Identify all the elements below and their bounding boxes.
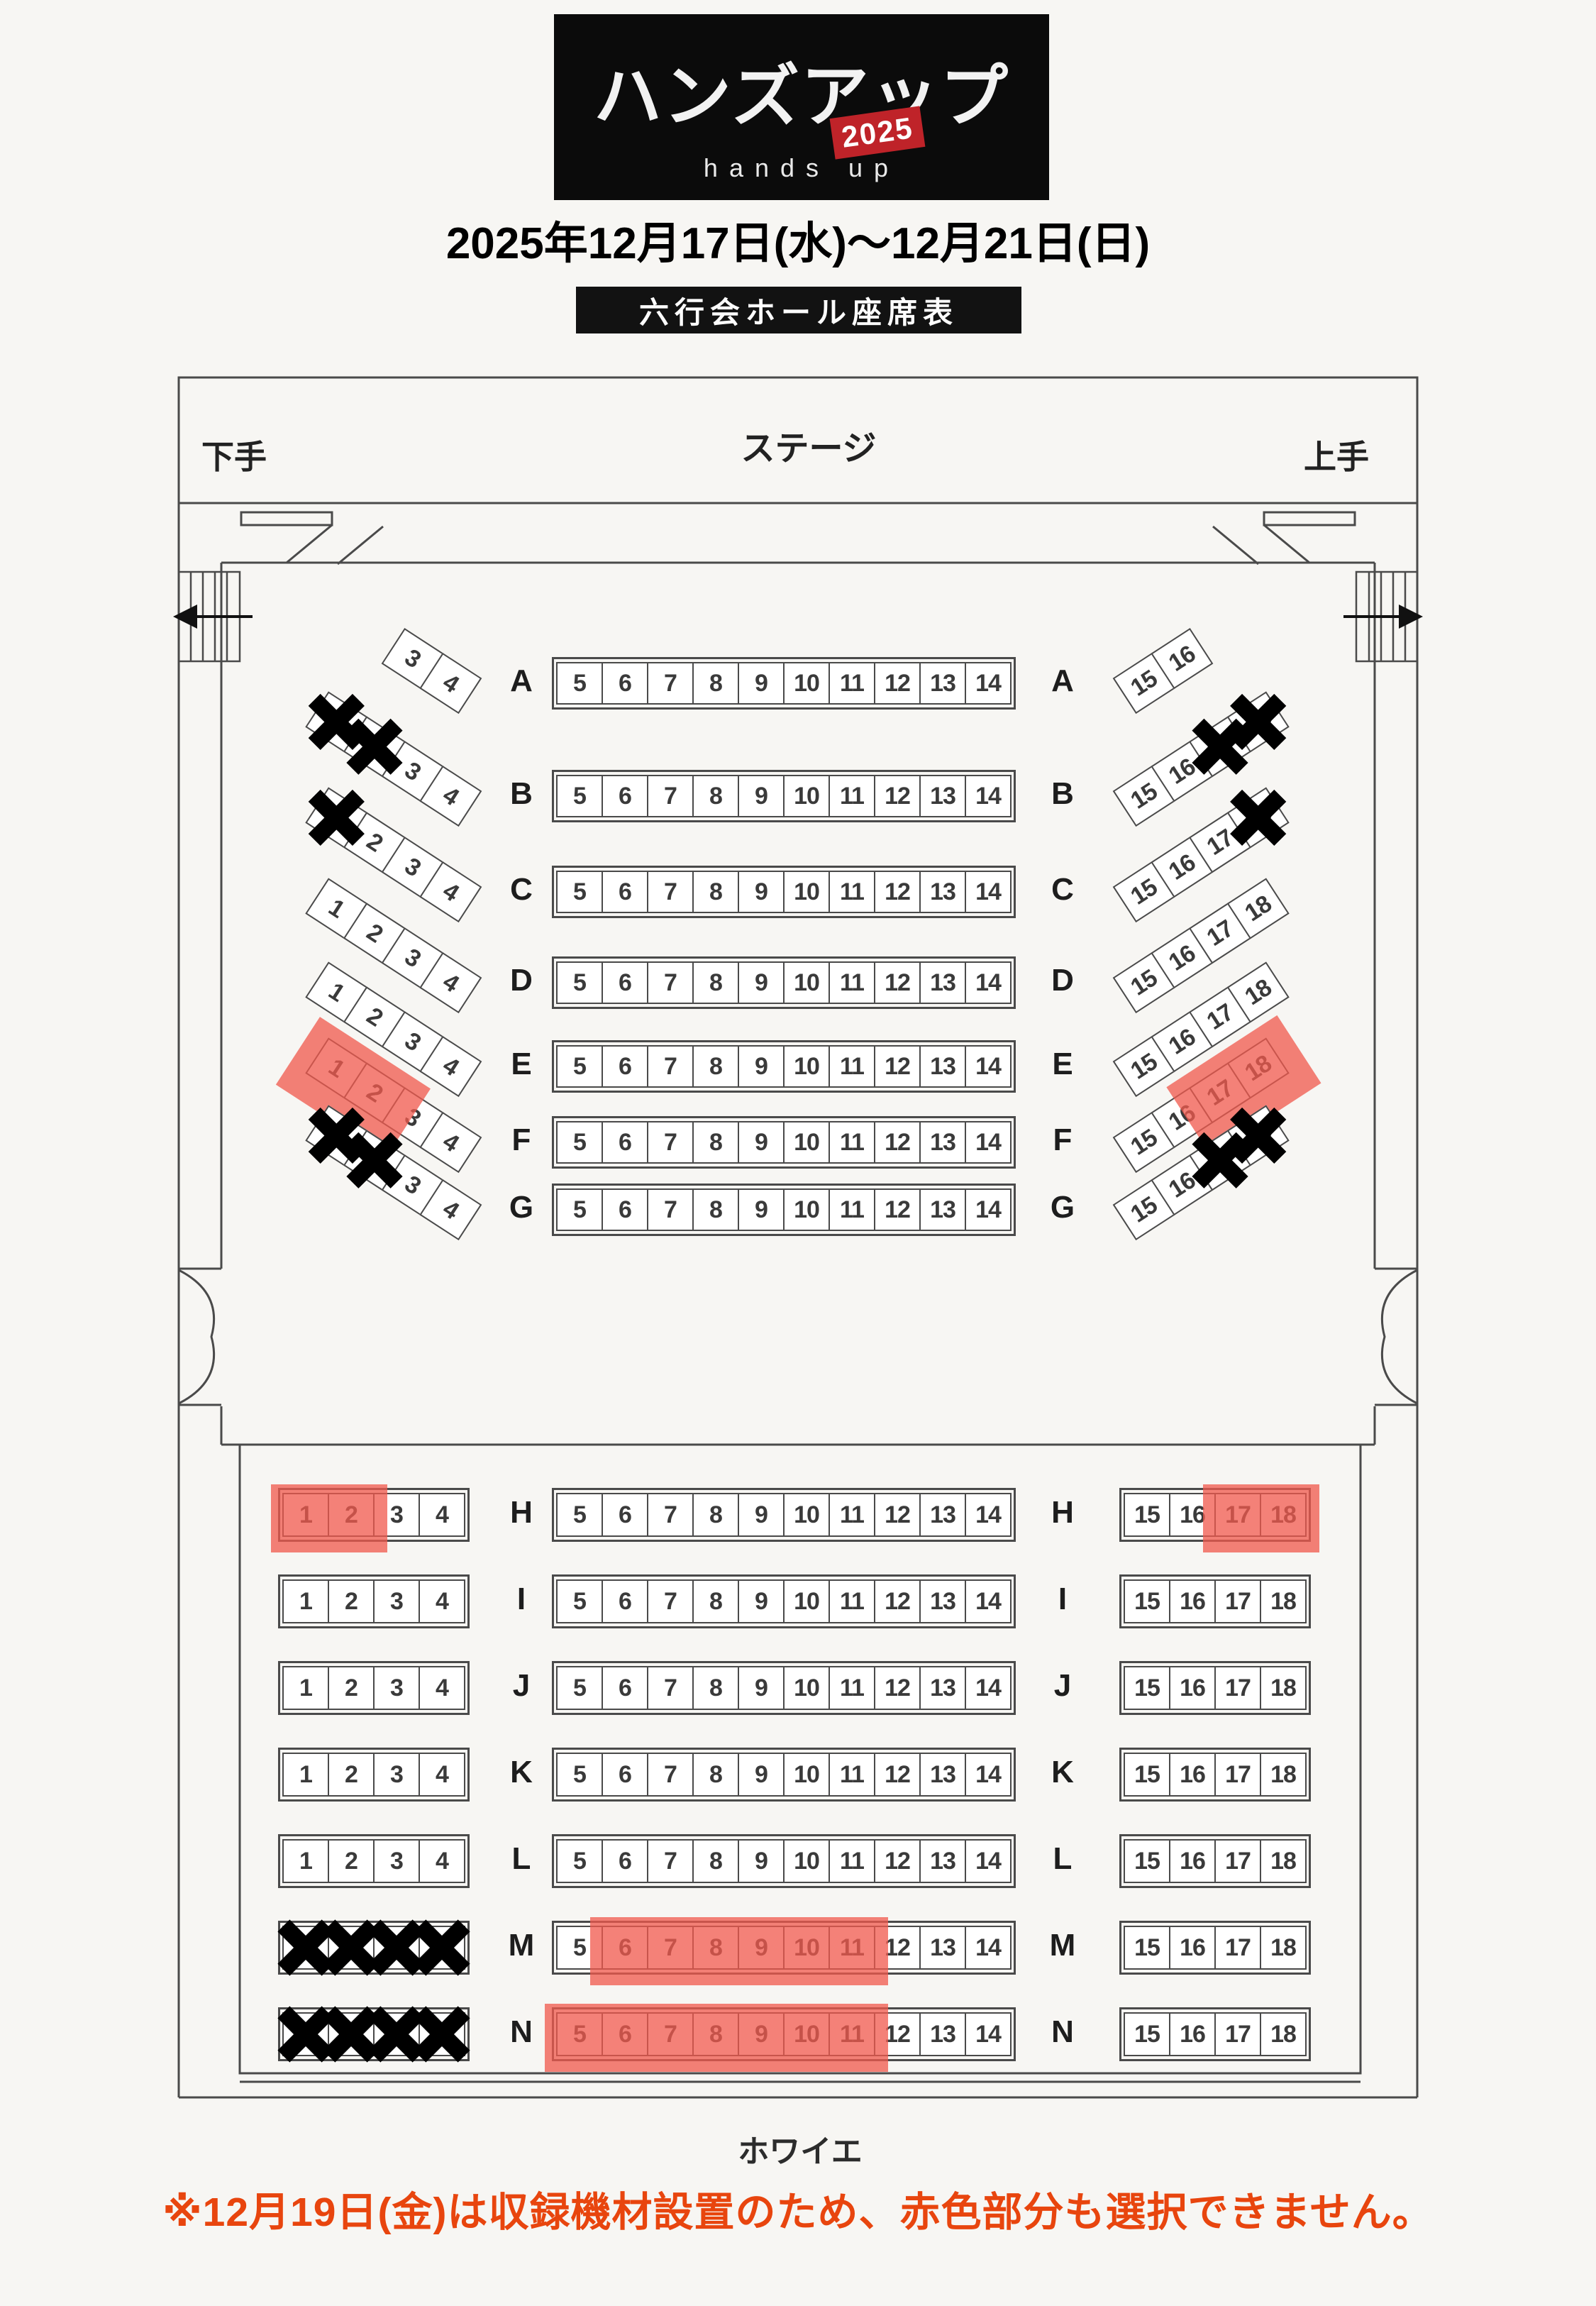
seat-J-18[interactable]: 18 [1260,1666,1307,1710]
seat-number: 9 [755,783,767,810]
seat-E-14[interactable]: 14 [965,1045,1012,1088]
seat-H-14[interactable]: 14 [965,1493,1012,1537]
hall-name-banner: 六行会ホール座席表 [576,287,1021,333]
seat-J-5[interactable]: 5 [556,1666,603,1710]
seat-number: 4 [436,1848,448,1875]
seat-N-9[interactable]: 9 [738,2012,785,2056]
seat-number: 18 [1240,890,1276,927]
seat-L-12[interactable]: 12 [874,1839,921,1883]
seat-L-11[interactable]: 11 [829,1839,875,1883]
seat-N-16[interactable]: 16 [1169,2012,1216,2056]
seat-F-11[interactable]: 11 [829,1121,875,1164]
seat-number: 7 [664,670,677,697]
seat-number: 6 [619,1675,631,1702]
seat-H-3[interactable]: 3 [373,1493,420,1537]
seat-G-11[interactable]: 11 [829,1188,875,1231]
seat-L-4[interactable]: 4 [419,1839,465,1883]
row-label-D-left: D [493,963,550,998]
seat-N-15[interactable]: 15 [1124,2012,1170,2056]
seat-F-12[interactable]: 12 [874,1121,921,1164]
seat-number: 18 [1240,1049,1276,1086]
seat-H-9[interactable]: 9 [738,1493,785,1537]
seat-F-8[interactable]: 8 [692,1121,739,1164]
seat-G-13[interactable]: 13 [919,1188,966,1231]
seat-H-17[interactable]: 17 [1214,1493,1261,1537]
seat-I-18[interactable]: 18 [1260,1579,1307,1623]
seat-number: 3 [400,1027,426,1057]
seat-L-14[interactable]: 14 [965,1839,1012,1883]
seat-J-3[interactable]: 3 [373,1666,420,1710]
seat-number: 11 [840,1848,864,1875]
seat-K-4[interactable]: 4 [419,1753,465,1797]
seat-K-3[interactable]: 3 [373,1753,420,1797]
seat-L-15[interactable]: 15 [1124,1839,1170,1883]
seat-K-13[interactable]: 13 [919,1753,966,1797]
seat-N-2: 2 [328,2012,375,2056]
seat-number: 13 [930,969,955,997]
seat-G-7[interactable]: 7 [647,1188,694,1231]
date-range: 2025年12月17日(水)〜12月21日(日) [0,207,1596,271]
seat-number: 16 [1180,1848,1205,1875]
seat-number: 16 [1180,2021,1205,2048]
seat-number: 4 [438,1127,463,1157]
seat-I-6[interactable]: 6 [602,1579,648,1623]
seat-number: 13 [930,1675,955,1702]
seat-J-17[interactable]: 17 [1214,1666,1261,1710]
seat-L-2[interactable]: 2 [328,1839,375,1883]
seat-H-13[interactable]: 13 [919,1493,966,1537]
seat-K-15[interactable]: 15 [1124,1753,1170,1797]
seat-L-6[interactable]: 6 [602,1839,648,1883]
seat-E-9[interactable]: 9 [738,1045,785,1088]
seat-N-18[interactable]: 18 [1260,2012,1307,2056]
seat-number: 6 [619,783,631,810]
seat-number: 6 [619,1761,631,1789]
seat-number: 8 [709,1848,722,1875]
row-F-center-block: 567891011121314 [552,1116,1016,1169]
seat-number: 3 [400,1103,426,1132]
seat-J-4[interactable]: 4 [419,1666,465,1710]
seat-D-7[interactable]: 7 [647,961,694,1004]
seat-N-12[interactable]: 12 [874,2012,921,2056]
seat-number: 3 [390,1588,403,1616]
seat-number: 1 [299,1848,312,1875]
seat-number: 17 [1202,1074,1238,1111]
seat-number: 18 [1240,1117,1276,1154]
seat-I-14[interactable]: 14 [965,1579,1012,1623]
seat-A-13[interactable]: 13 [919,662,966,705]
row-L-center-block: 567891011121314 [552,1834,1016,1888]
row-label-A-right: A [1034,663,1091,699]
seat-number: 14 [975,1588,1001,1616]
seat-K-1[interactable]: 1 [282,1753,329,1797]
seat-I-15[interactable]: 15 [1124,1579,1170,1623]
seat-J-16[interactable]: 16 [1169,1666,1216,1710]
seat-L-7[interactable]: 7 [647,1839,694,1883]
seat-M-7[interactable]: 7 [647,1926,694,1970]
seat-number: 9 [755,1761,767,1789]
seat-J-8[interactable]: 8 [692,1666,739,1710]
seat-M-9[interactable]: 9 [738,1926,785,1970]
seat-number: 15 [1134,1848,1160,1875]
seat-J-10[interactable]: 10 [783,1666,830,1710]
seat-E-5[interactable]: 5 [556,1045,603,1088]
seat-I-4[interactable]: 4 [419,1579,465,1623]
seat-number: 5 [573,1053,586,1081]
seat-C-10[interactable]: 10 [783,871,830,913]
seat-F-6[interactable]: 6 [602,1121,648,1164]
row-label-I-right: I [1034,1582,1091,1617]
seat-number: 1 [299,2021,312,2048]
seat-A-7[interactable]: 7 [647,662,694,705]
seat-number: 12 [885,1129,910,1157]
seat-I-9[interactable]: 9 [738,1579,785,1623]
seat-I-1[interactable]: 1 [282,1579,329,1623]
seat-C-6[interactable]: 6 [602,871,648,913]
seat-D-10[interactable]: 10 [783,961,830,1004]
seat-I-8[interactable]: 8 [692,1579,739,1623]
seat-number: 12 [885,783,910,810]
seat-C-13[interactable]: 13 [919,871,966,913]
seat-K-6[interactable]: 6 [602,1753,648,1797]
seat-G-9[interactable]: 9 [738,1188,785,1231]
seat-I-3[interactable]: 3 [373,1579,420,1623]
seat-C-8[interactable]: 8 [692,871,739,913]
seat-F-5[interactable]: 5 [556,1121,603,1164]
row-H-center-block: 567891011121314 [552,1488,1016,1542]
seat-number: 14 [975,1761,1001,1789]
seat-H-12[interactable]: 12 [874,1493,921,1537]
seat-number: 7 [664,1934,677,1962]
seat-C-14[interactable]: 14 [965,871,1012,913]
seat-B-12[interactable]: 12 [874,775,921,817]
seat-B-13[interactable]: 13 [919,775,966,817]
row-label-H-right: H [1034,1495,1091,1530]
seat-B-8[interactable]: 8 [692,775,739,817]
seat-L-16[interactable]: 16 [1169,1839,1216,1883]
seat-number: 17 [1202,998,1238,1035]
seat-I-2[interactable]: 2 [328,1579,375,1623]
seat-K-11[interactable]: 11 [829,1753,875,1797]
seat-number: 11 [840,1129,864,1157]
seat-G-5[interactable]: 5 [556,1188,603,1231]
seat-B-10[interactable]: 10 [783,775,830,817]
seat-J-9[interactable]: 9 [738,1666,785,1710]
seat-E-10[interactable]: 10 [783,1045,830,1088]
seat-J-7[interactable]: 7 [647,1666,694,1710]
seat-number: 14 [975,1053,1001,1081]
seat-number: 5 [573,1761,586,1789]
seat-number: 17 [1225,2021,1251,2048]
seat-N-8[interactable]: 8 [692,2012,739,2056]
seat-A-6[interactable]: 6 [602,662,648,705]
seat-D-13[interactable]: 13 [919,961,966,1004]
seat-number: 13 [930,1053,955,1081]
seat-number: 9 [755,1588,767,1616]
seat-A-14[interactable]: 14 [965,662,1012,705]
seat-A-11[interactable]: 11 [829,662,875,705]
seat-F-13[interactable]: 13 [919,1121,966,1164]
seat-B-6[interactable]: 6 [602,775,648,817]
show-title: ハンズアップ [554,41,1049,140]
seat-B-14[interactable]: 14 [965,775,1012,817]
seat-B-11[interactable]: 11 [829,775,875,817]
seat-M-13[interactable]: 13 [919,1926,966,1970]
seat-I-10[interactable]: 10 [783,1579,830,1623]
seat-L-1[interactable]: 1 [282,1839,329,1883]
seat-number: 6 [619,1934,631,1962]
seat-M-14[interactable]: 14 [965,1926,1012,1970]
seat-A-10[interactable]: 10 [783,662,830,705]
seat-D-11[interactable]: 11 [829,961,875,1004]
seat-C-7[interactable]: 7 [647,871,694,913]
seat-C-9[interactable]: 9 [738,871,785,913]
seat-number: 15 [1126,1191,1162,1228]
row-label-G-left: G [493,1190,550,1225]
seat-number: 16 [1180,1934,1205,1962]
seat-L-9[interactable]: 9 [738,1839,785,1883]
seat-number: 11 [840,969,864,997]
seat-N-14[interactable]: 14 [965,2012,1012,2056]
row-H-right-block: 15161718 [1119,1488,1311,1542]
row-label-B-left: B [493,776,550,812]
seat-number: 9 [755,878,767,906]
seat-K-18[interactable]: 18 [1260,1753,1307,1797]
seat-number: 10 [794,2021,819,2048]
seat-E-7[interactable]: 7 [647,1045,694,1088]
seat-J-15[interactable]: 15 [1124,1666,1170,1710]
seat-J-2[interactable]: 2 [328,1666,375,1710]
seat-number: 1 [323,977,349,1007]
seat-number: 16 [1164,1099,1200,1136]
seat-G-10[interactable]: 10 [783,1188,830,1231]
seat-number: 7 [664,1848,677,1875]
seat-H-8[interactable]: 8 [692,1493,739,1537]
seat-L-13[interactable]: 13 [919,1839,966,1883]
seat-A-12[interactable]: 12 [874,662,921,705]
seat-M-8[interactable]: 8 [692,1926,739,1970]
seat-J-12[interactable]: 12 [874,1666,921,1710]
seat-J-6[interactable]: 6 [602,1666,648,1710]
seat-number: 8 [709,1761,722,1789]
seat-N-17[interactable]: 17 [1214,2012,1261,2056]
seat-H-6[interactable]: 6 [602,1493,648,1537]
seat-N-13[interactable]: 13 [919,2012,966,2056]
seat-N-10[interactable]: 10 [783,2012,830,2056]
seat-number: 14 [975,2021,1001,2048]
seat-G-12[interactable]: 12 [874,1188,921,1231]
seat-number: 4 [436,1501,448,1529]
seat-E-12[interactable]: 12 [874,1045,921,1088]
seat-A-8[interactable]: 8 [692,662,739,705]
seat-H-15[interactable]: 15 [1124,1493,1170,1537]
seat-M-16[interactable]: 16 [1169,1926,1216,1970]
seat-H-16[interactable]: 16 [1169,1493,1216,1537]
row-label-A-left: A [493,663,550,699]
seat-number: 14 [975,1196,1001,1224]
seat-H-1[interactable]: 1 [282,1493,329,1537]
seat-L-5[interactable]: 5 [556,1839,603,1883]
seat-number: 11 [840,670,864,697]
seat-I-12[interactable]: 12 [874,1579,921,1623]
seat-number: 16 [1164,849,1200,886]
row-label-N-right: N [1034,2014,1091,2050]
seat-I-11[interactable]: 11 [829,1579,875,1623]
seat-number: 16 [1164,939,1200,976]
seat-N-7[interactable]: 7 [647,2012,694,2056]
row-label-I-left: I [493,1582,550,1617]
seat-K-10[interactable]: 10 [783,1753,830,1797]
seat-number: 10 [794,1934,819,1962]
seat-H-7[interactable]: 7 [647,1493,694,1537]
seat-K-2[interactable]: 2 [328,1753,375,1797]
seat-D-8[interactable]: 8 [692,961,739,1004]
seat-number: 16 [1180,1588,1205,1616]
seat-I-13[interactable]: 13 [919,1579,966,1623]
seat-D-5[interactable]: 5 [556,961,603,1004]
seat-M-10[interactable]: 10 [783,1926,830,1970]
seat-number: 5 [573,1501,586,1529]
row-J-center-block: 567891011121314 [552,1661,1016,1715]
seat-F-7[interactable]: 7 [647,1121,694,1164]
seat-K-9[interactable]: 9 [738,1753,785,1797]
seat-M-12[interactable]: 12 [874,1926,921,1970]
seat-number: 6 [619,1588,631,1616]
seat-I-16[interactable]: 16 [1169,1579,1216,1623]
seat-M-2: 2 [328,1926,375,1970]
seat-D-14[interactable]: 14 [965,961,1012,1004]
seat-K-16[interactable]: 16 [1169,1753,1216,1797]
seat-I-5[interactable]: 5 [556,1579,603,1623]
seat-number: 6 [619,1196,631,1224]
seat-K-14[interactable]: 14 [965,1753,1012,1797]
seat-number: 16 [1164,640,1200,677]
seat-M-5[interactable]: 5 [556,1926,603,1970]
seat-K-12[interactable]: 12 [874,1753,921,1797]
seat-E-11[interactable]: 11 [829,1045,875,1088]
seat-number: 18 [1240,799,1276,836]
seat-M-6[interactable]: 6 [602,1926,648,1970]
seat-number: 9 [755,1129,767,1157]
seat-number: 6 [619,1053,631,1081]
seat-F-9[interactable]: 9 [738,1121,785,1164]
row-label-C-left: C [493,872,550,907]
seat-B-7[interactable]: 7 [647,775,694,817]
seat-G-14[interactable]: 14 [965,1188,1012,1231]
seat-I-7[interactable]: 7 [647,1579,694,1623]
seat-number: 17 [1225,1848,1251,1875]
seat-D-12[interactable]: 12 [874,961,921,1004]
seat-number: 3 [390,1848,403,1875]
seat-M-4: 4 [419,1926,465,1970]
seat-K-8[interactable]: 8 [692,1753,739,1797]
seat-number: 11 [840,1588,864,1616]
seat-N-3: 3 [373,2012,420,2056]
seat-E-6[interactable]: 6 [602,1045,648,1088]
seat-number: 11 [840,1196,864,1224]
seat-H-11[interactable]: 11 [829,1493,875,1537]
seat-number: 5 [573,1934,586,1962]
seat-L-8[interactable]: 8 [692,1839,739,1883]
seat-N-11[interactable]: 11 [829,2012,875,2056]
row-label-D-right: D [1034,963,1091,998]
seat-number: 7 [664,969,677,997]
seat-number: 5 [573,2021,586,2048]
seat-L-3[interactable]: 3 [373,1839,420,1883]
seat-F-14[interactable]: 14 [965,1121,1012,1164]
seat-number: 12 [885,1053,910,1081]
seat-J-14[interactable]: 14 [965,1666,1012,1710]
seat-number: 7 [664,1588,677,1616]
seat-number: 2 [345,1761,358,1789]
seat-N-6[interactable]: 6 [602,2012,648,2056]
seat-B-5[interactable]: 5 [556,775,603,817]
seat-H-4[interactable]: 4 [419,1493,465,1537]
seat-A-9[interactable]: 9 [738,662,785,705]
seat-number: 18 [1270,1934,1296,1962]
seat-H-2[interactable]: 2 [328,1493,375,1537]
seat-number: 10 [794,1129,819,1157]
seat-number: 18 [1240,703,1276,740]
row-label-L-right: L [1034,1841,1091,1877]
row-M-right-block: 15161718 [1119,1921,1311,1975]
seat-C-5[interactable]: 5 [556,871,603,913]
seat-number: 14 [975,1501,1001,1529]
seat-H-10[interactable]: 10 [783,1493,830,1537]
seat-number: 1 [323,1053,349,1083]
seat-E-8[interactable]: 8 [692,1045,739,1088]
seat-number: 15 [1134,1501,1160,1529]
row-G-center-block: 567891011121314 [552,1184,1016,1236]
seat-number: 3 [400,644,426,673]
seat-number: 13 [930,1934,955,1962]
seat-J-1[interactable]: 1 [282,1666,329,1710]
seat-L-18[interactable]: 18 [1260,1839,1307,1883]
seat-N-5[interactable]: 5 [556,2012,603,2056]
seat-M-15[interactable]: 15 [1124,1926,1170,1970]
seat-M-18[interactable]: 18 [1260,1926,1307,1970]
seat-J-11[interactable]: 11 [829,1666,875,1710]
seat-I-17[interactable]: 17 [1214,1579,1261,1623]
seat-G-6[interactable]: 6 [602,1188,648,1231]
seat-C-12[interactable]: 12 [874,871,921,913]
seat-K-7[interactable]: 7 [647,1753,694,1797]
seat-F-10[interactable]: 10 [783,1121,830,1164]
seat-G-8[interactable]: 8 [692,1188,739,1231]
seat-D-6[interactable]: 6 [602,961,648,1004]
seat-number: 13 [930,878,955,906]
seat-E-13[interactable]: 13 [919,1045,966,1088]
seat-N-4: 4 [419,2012,465,2056]
left-door-swing [179,1269,221,1405]
row-label-M-right: M [1034,1928,1091,1963]
seat-K-17[interactable]: 17 [1214,1753,1261,1797]
seat-J-13[interactable]: 13 [919,1666,966,1710]
seat-L-17[interactable]: 17 [1214,1839,1261,1883]
row-label-J-right: J [1034,1668,1091,1704]
seat-H-5[interactable]: 5 [556,1493,603,1537]
seat-M-11[interactable]: 11 [829,1926,875,1970]
seat-number: 2 [362,732,387,761]
seat-H-18[interactable]: 18 [1260,1493,1307,1537]
seat-B-9[interactable]: 9 [738,775,785,817]
seat-K-5[interactable]: 5 [556,1753,603,1797]
seat-A-5[interactable]: 5 [556,662,603,705]
seat-D-9[interactable]: 9 [738,961,785,1004]
seat-M-17[interactable]: 17 [1214,1926,1261,1970]
seat-L-10[interactable]: 10 [783,1839,830,1883]
seat-C-11[interactable]: 11 [829,871,875,913]
